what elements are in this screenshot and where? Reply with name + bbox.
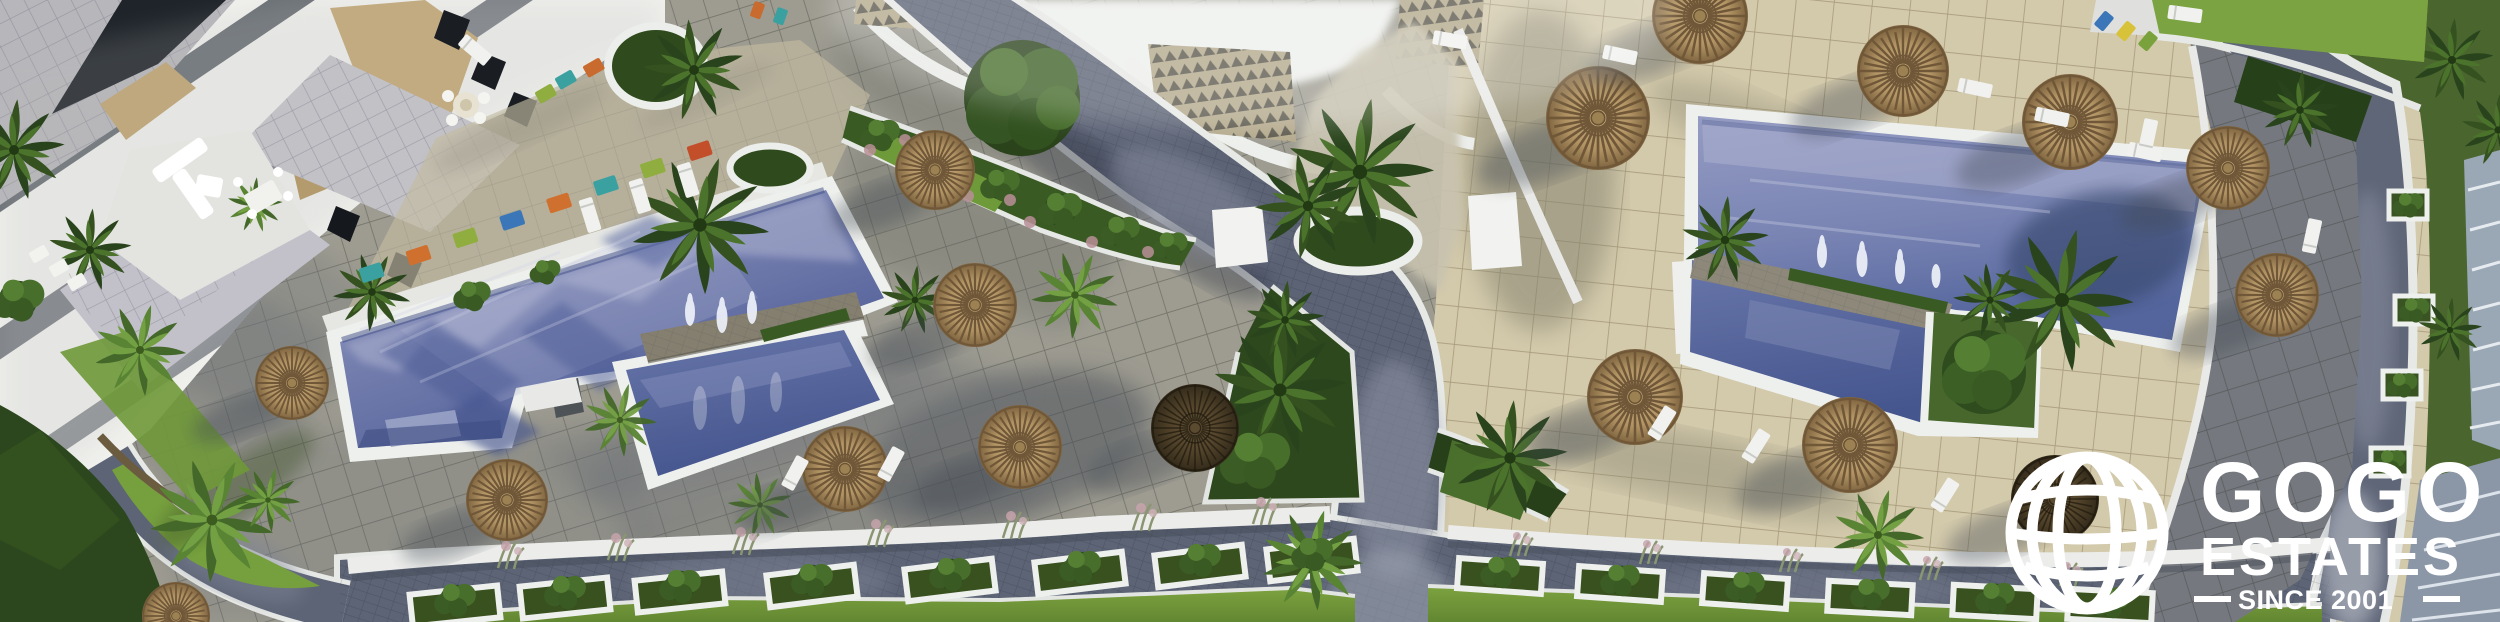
svg-text:SINCE 2001: SINCE 2001 [2238,585,2393,615]
svg-text:ESTATES: ESTATES [2200,527,2462,587]
svg-text:GOGO: GOGO [2200,445,2489,539]
